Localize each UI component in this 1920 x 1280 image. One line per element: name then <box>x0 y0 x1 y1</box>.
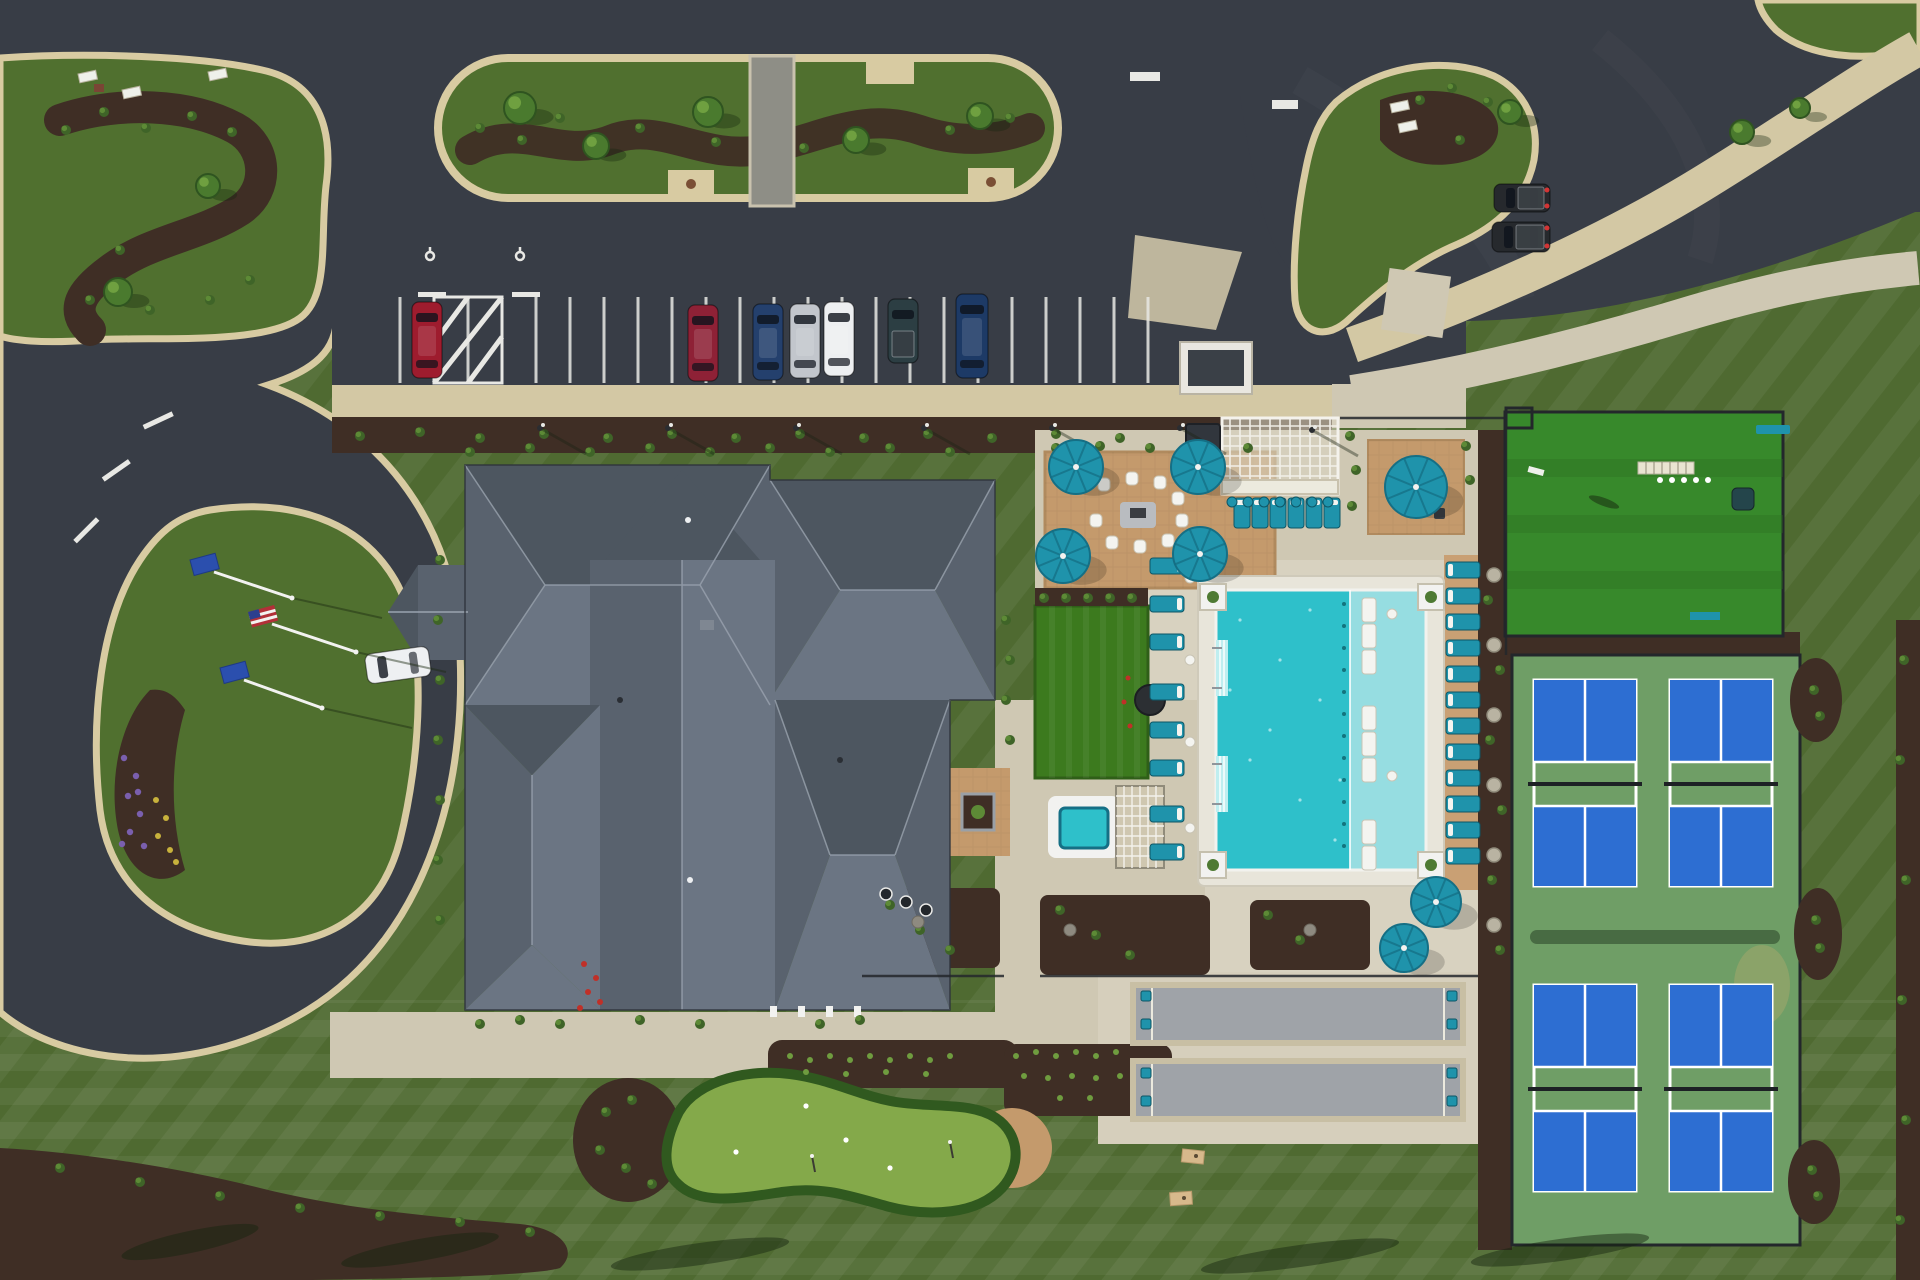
fence-bed <box>1788 1140 1840 1224</box>
clubhouse-roof <box>388 465 995 1017</box>
aerial-photo: Aerial drone view of a community clubhou… <box>0 0 1920 1280</box>
pickleball-courts <box>1512 655 1842 1245</box>
hot-tub <box>1048 796 1120 858</box>
stall-dash <box>512 292 540 297</box>
sign-board <box>94 84 104 92</box>
court-C <box>1528 985 1642 1191</box>
bocce-court-2 <box>1130 1058 1466 1122</box>
road-marking <box>1272 100 1298 109</box>
fire-table-burner <box>1130 508 1146 518</box>
pool-water <box>1216 590 1350 870</box>
ball-caddy <box>1732 488 1754 510</box>
median-island <box>438 56 1058 206</box>
baja-shelf <box>1350 590 1426 870</box>
road-marking <box>1130 72 1160 81</box>
turf-bench-2 <box>1690 612 1720 620</box>
swimming-pool <box>1198 576 1444 886</box>
car-red <box>412 302 442 378</box>
shuffle-strip <box>1638 462 1694 474</box>
courtyard-planter <box>948 768 1010 856</box>
scene-canvas <box>0 0 1920 1280</box>
pickup-dark-teal <box>888 299 918 363</box>
manhole <box>986 177 996 187</box>
fence-bed <box>1794 888 1842 980</box>
event-lawn <box>1035 606 1165 778</box>
concrete-pad <box>1381 268 1451 338</box>
manhole <box>686 179 696 189</box>
bocce-court-1 <box>1130 982 1466 1046</box>
car-navy <box>753 304 783 380</box>
turf-games-area <box>1500 408 1800 658</box>
car-white <box>824 302 854 376</box>
pool-building <box>1180 342 1252 394</box>
turf-bench <box>1756 425 1790 434</box>
truck-dark-1 <box>1494 184 1550 212</box>
fence-bed <box>1790 658 1842 742</box>
court-A <box>1528 680 1642 886</box>
top-left-lawn <box>0 55 328 341</box>
curb-pad <box>866 56 914 84</box>
median-crosswalk <box>750 56 794 206</box>
suv-navy <box>956 294 988 378</box>
car-maroon <box>688 305 718 381</box>
ne-walk <box>1332 384 1466 428</box>
in-pool-loungers <box>1362 598 1376 870</box>
court-B <box>1664 680 1778 886</box>
court-D <box>1664 985 1778 1191</box>
center-divider-marks <box>1530 930 1780 944</box>
truck-dark-2 <box>1492 222 1550 252</box>
car-silver <box>790 304 820 378</box>
